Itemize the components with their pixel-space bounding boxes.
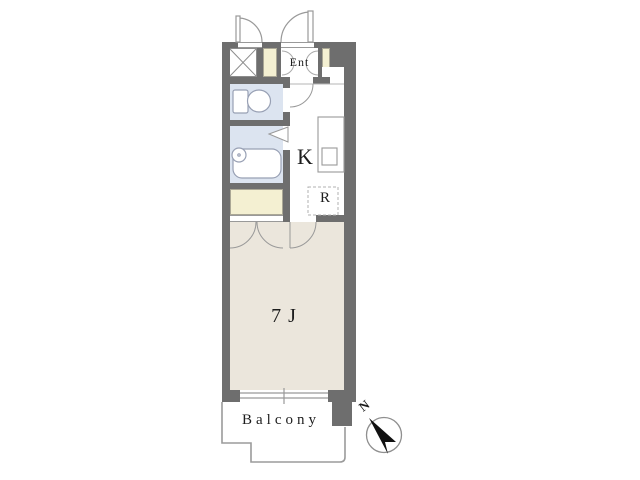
kitchen-room-doorway [290,215,316,222]
toilet-room [230,84,283,120]
main-room-label: 7J [230,306,344,326]
entrance-label: Ent [281,56,318,68]
wall-top-right-corner [330,42,356,67]
wall-right [344,42,356,402]
meter-box-area [229,48,257,77]
balcony-label: Balcony [226,413,336,428]
refrigerator-label: R [310,191,340,206]
north-label: N [354,395,375,415]
wall-room-top [283,215,290,222]
wall-toilet-bath [230,120,283,126]
wall-separator [257,48,263,77]
wall-room-top-right [316,215,356,222]
bath-room [230,126,283,183]
floorplan-canvas: Ent K R 7J Balcony N [0,0,640,480]
kitchen-label: K [288,146,322,168]
wall-separator [318,48,322,77]
north-arrow-icon [367,418,402,455]
toilet-doorway [283,88,290,112]
closet-opening [230,215,283,222]
wall-entry-side [313,77,330,84]
balcony-area [222,402,345,462]
wall-bath-closet [230,183,283,189]
balcony-window [240,390,328,402]
entrance-doorway [281,42,314,48]
door-swing-arcs-exterior [236,11,313,42]
meter-box-doorway [238,42,262,48]
shoe-cabinet [263,48,277,77]
closet-area [230,189,283,215]
wall-bottom-right [328,390,356,402]
wall-left [222,42,230,402]
wall-bottom-left [222,390,240,402]
wall-toilet-top [222,77,290,84]
